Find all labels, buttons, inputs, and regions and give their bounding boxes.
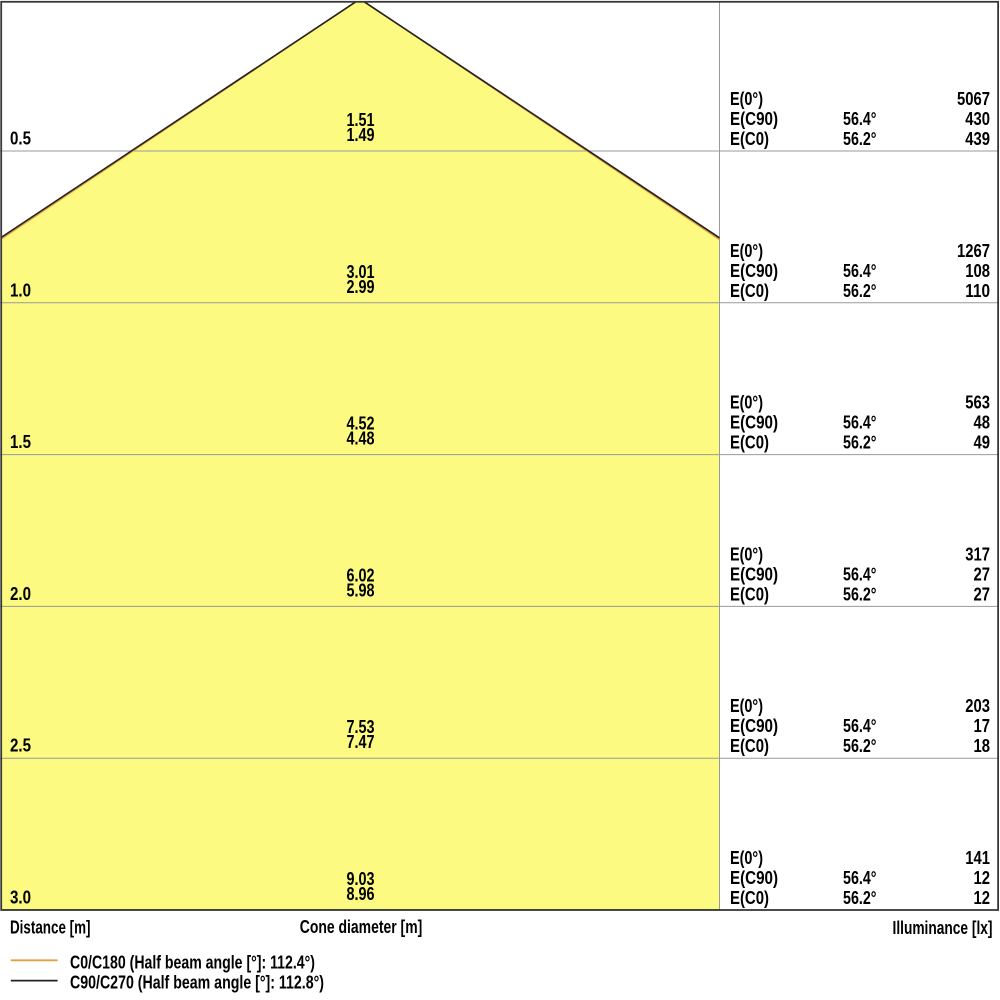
svg-text:49: 49	[974, 433, 991, 453]
svg-text:E(C0): E(C0)	[730, 129, 769, 149]
svg-text:56.2°: 56.2°	[843, 433, 877, 453]
svg-text:E(0°): E(0°)	[730, 89, 763, 109]
svg-text:E(C90): E(C90)	[730, 413, 778, 433]
svg-text:56.2°: 56.2°	[843, 281, 877, 301]
svg-text:E(C0): E(C0)	[730, 584, 769, 604]
svg-text:56.2°: 56.2°	[843, 736, 877, 756]
svg-text:7.47: 7.47	[347, 732, 375, 752]
svg-text:E(C90): E(C90)	[730, 564, 778, 584]
svg-text:E(C0): E(C0)	[730, 736, 769, 756]
svg-text:2.99: 2.99	[347, 277, 375, 297]
svg-text:110: 110	[965, 281, 990, 301]
svg-text:141: 141	[965, 848, 990, 868]
svg-text:56.4°: 56.4°	[843, 716, 877, 736]
svg-text:1.5: 1.5	[10, 432, 31, 452]
svg-text:27: 27	[974, 564, 991, 584]
svg-text:E(C90): E(C90)	[730, 716, 778, 736]
svg-text:E(0°): E(0°)	[730, 544, 763, 564]
svg-text:2.0: 2.0	[10, 584, 31, 604]
svg-text:108: 108	[965, 261, 990, 281]
svg-text:56.2°: 56.2°	[843, 888, 877, 908]
svg-text:E(C0): E(C0)	[730, 888, 769, 908]
svg-text:17: 17	[974, 716, 991, 736]
svg-text:E(0°): E(0°)	[730, 848, 763, 868]
svg-text:56.4°: 56.4°	[843, 109, 877, 129]
svg-text:8.96: 8.96	[347, 884, 375, 904]
svg-text:56.4°: 56.4°	[843, 564, 877, 584]
svg-text:27: 27	[974, 584, 991, 604]
svg-text:56.4°: 56.4°	[843, 413, 877, 433]
svg-text:E(0°): E(0°)	[730, 241, 763, 261]
svg-text:48: 48	[974, 413, 991, 433]
svg-text:E(0°): E(0°)	[730, 696, 763, 716]
svg-text:Distance [m]: Distance [m]	[10, 918, 91, 938]
svg-text:0.5: 0.5	[10, 129, 31, 149]
svg-text:56.2°: 56.2°	[843, 129, 877, 149]
svg-text:C90/C270 (Half beam angle [°]:: C90/C270 (Half beam angle [°]: 112.8°)	[70, 973, 324, 993]
svg-text:12: 12	[974, 888, 991, 908]
svg-text:203: 203	[965, 696, 990, 716]
svg-text:4.48: 4.48	[347, 429, 375, 449]
svg-text:18: 18	[974, 736, 991, 756]
svg-text:3.0: 3.0	[10, 888, 31, 908]
svg-text:563: 563	[965, 393, 990, 413]
svg-text:56.4°: 56.4°	[843, 868, 877, 888]
svg-text:439: 439	[965, 129, 990, 149]
svg-text:E(C90): E(C90)	[730, 261, 778, 281]
svg-text:430: 430	[965, 109, 990, 129]
svg-text:E(C0): E(C0)	[730, 281, 769, 301]
svg-text:2.5: 2.5	[10, 736, 31, 756]
svg-text:12: 12	[974, 868, 991, 888]
svg-text:E(C90): E(C90)	[730, 868, 778, 888]
svg-text:5.98: 5.98	[347, 580, 375, 600]
svg-text:C0/C180 (Half beam angle [°]:: C0/C180 (Half beam angle [°]: 112.4°)	[70, 952, 315, 972]
svg-text:Illuminance [lx]: Illuminance [lx]	[893, 918, 993, 938]
svg-text:317: 317	[965, 544, 990, 564]
svg-text:E(C90): E(C90)	[730, 109, 778, 129]
svg-text:56.4°: 56.4°	[843, 261, 877, 281]
svg-text:1.49: 1.49	[347, 125, 375, 145]
svg-text:5067: 5067	[957, 89, 990, 109]
svg-text:Cone diameter [m]: Cone diameter [m]	[300, 917, 423, 937]
svg-text:56.2°: 56.2°	[843, 584, 877, 604]
svg-text:1267: 1267	[957, 241, 990, 261]
svg-text:E(C0): E(C0)	[730, 433, 769, 453]
svg-text:1.0: 1.0	[10, 280, 31, 300]
svg-text:E(0°): E(0°)	[730, 393, 763, 413]
